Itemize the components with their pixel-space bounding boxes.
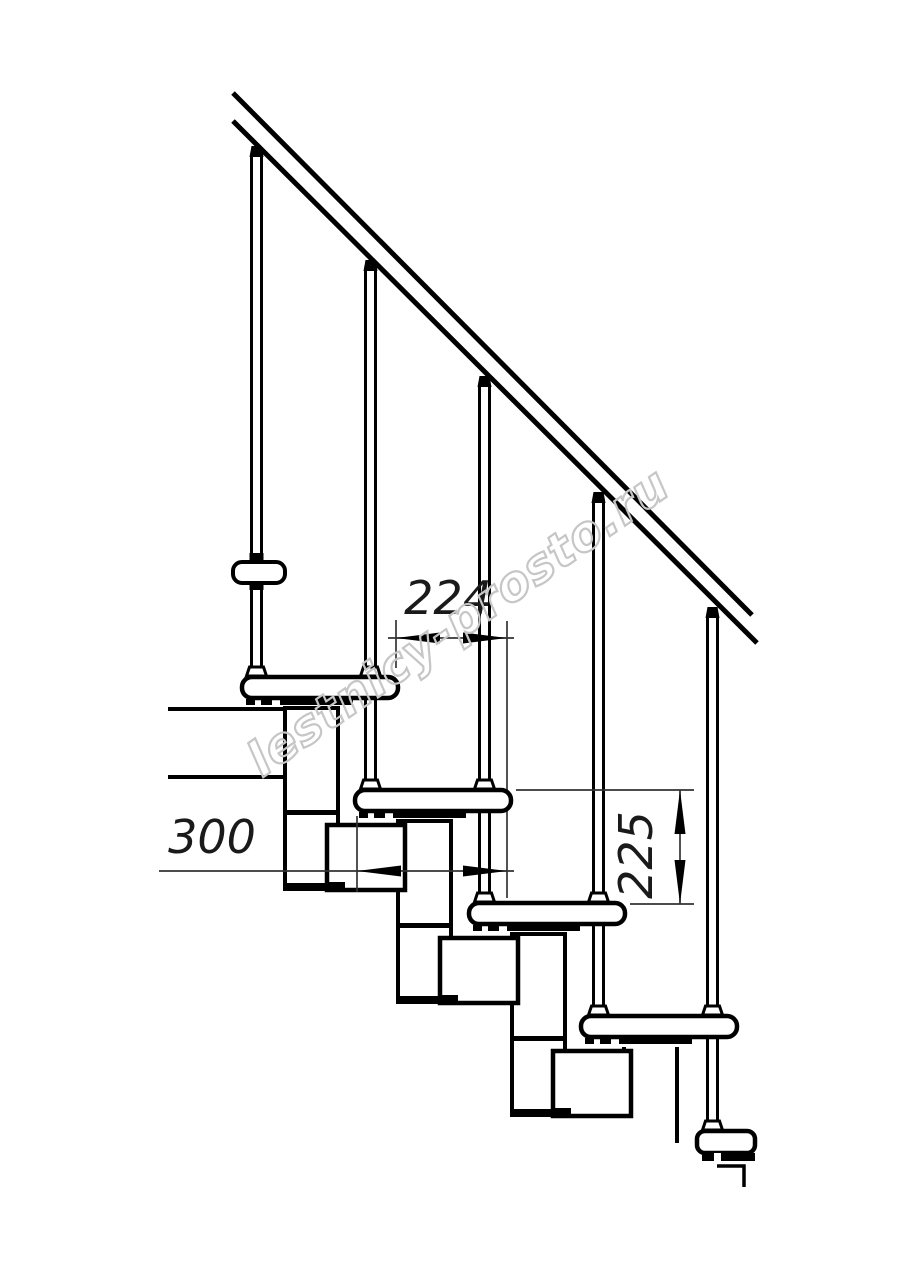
rail-connector-icon	[478, 376, 492, 387]
baluster-1	[250, 146, 264, 672]
module-cube-2	[440, 938, 518, 1003]
tread-4	[581, 1016, 737, 1037]
rail-connector-icon	[250, 146, 264, 157]
tread-5-mounting-strip	[702, 1153, 755, 1161]
dimension-225-label: 225	[609, 811, 663, 899]
module-cube-1	[327, 825, 405, 890]
baluster-4	[592, 492, 606, 1011]
floor-step-line	[717, 1166, 744, 1187]
staircase-technical-drawing: 224 300 225 lestnicy-prosto.ru	[0, 0, 914, 1280]
tread-3	[469, 903, 625, 924]
rail-connector-icon	[364, 260, 378, 271]
rail-connector-icon	[706, 607, 720, 618]
tread-5-bottom	[697, 1131, 755, 1153]
arrowhead-up-icon	[675, 790, 686, 834]
baluster-5	[706, 607, 720, 1126]
handrail	[233, 93, 757, 643]
dimension-300-label: 300	[168, 810, 256, 864]
module-cube-3	[553, 1051, 631, 1116]
drawing-svg: 224 300 225 lestnicy-prosto.ru	[0, 0, 914, 1280]
arrowhead-right-icon	[463, 866, 507, 877]
arrowhead-down-icon	[675, 860, 686, 904]
tread-2	[355, 790, 511, 811]
watermark: lestnicy-prosto.ru	[237, 456, 680, 788]
baluster-collar	[233, 553, 285, 590]
